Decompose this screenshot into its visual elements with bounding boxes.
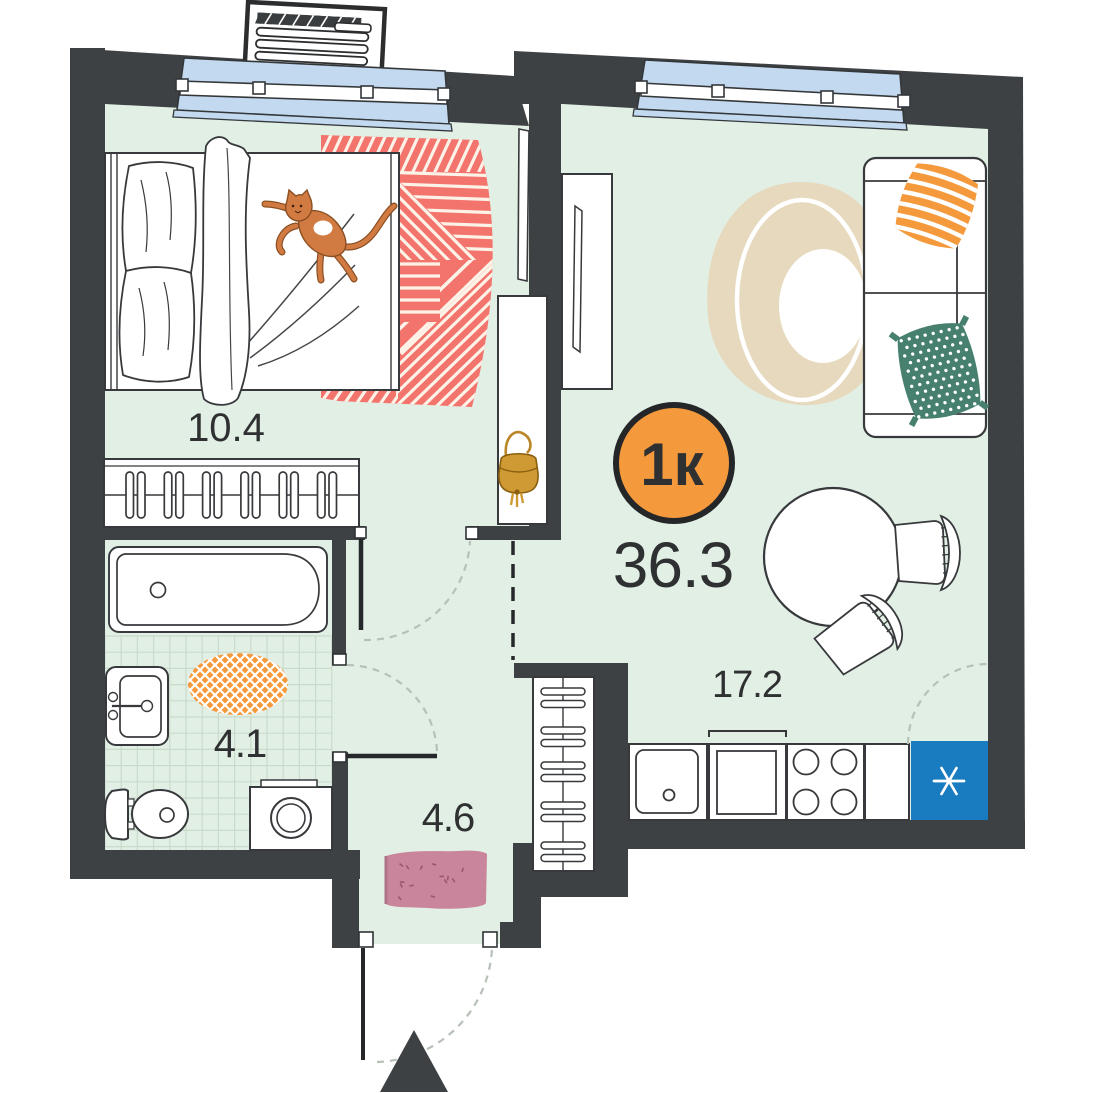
- svg-text:36.3: 36.3: [613, 529, 734, 601]
- svg-text:4.1: 4.1: [214, 722, 267, 766]
- svg-text:4.6: 4.6: [422, 796, 475, 840]
- svg-text:10.4: 10.4: [187, 406, 265, 450]
- svg-text:1к: 1к: [640, 431, 704, 498]
- svg-text:17.2: 17.2: [712, 664, 782, 706]
